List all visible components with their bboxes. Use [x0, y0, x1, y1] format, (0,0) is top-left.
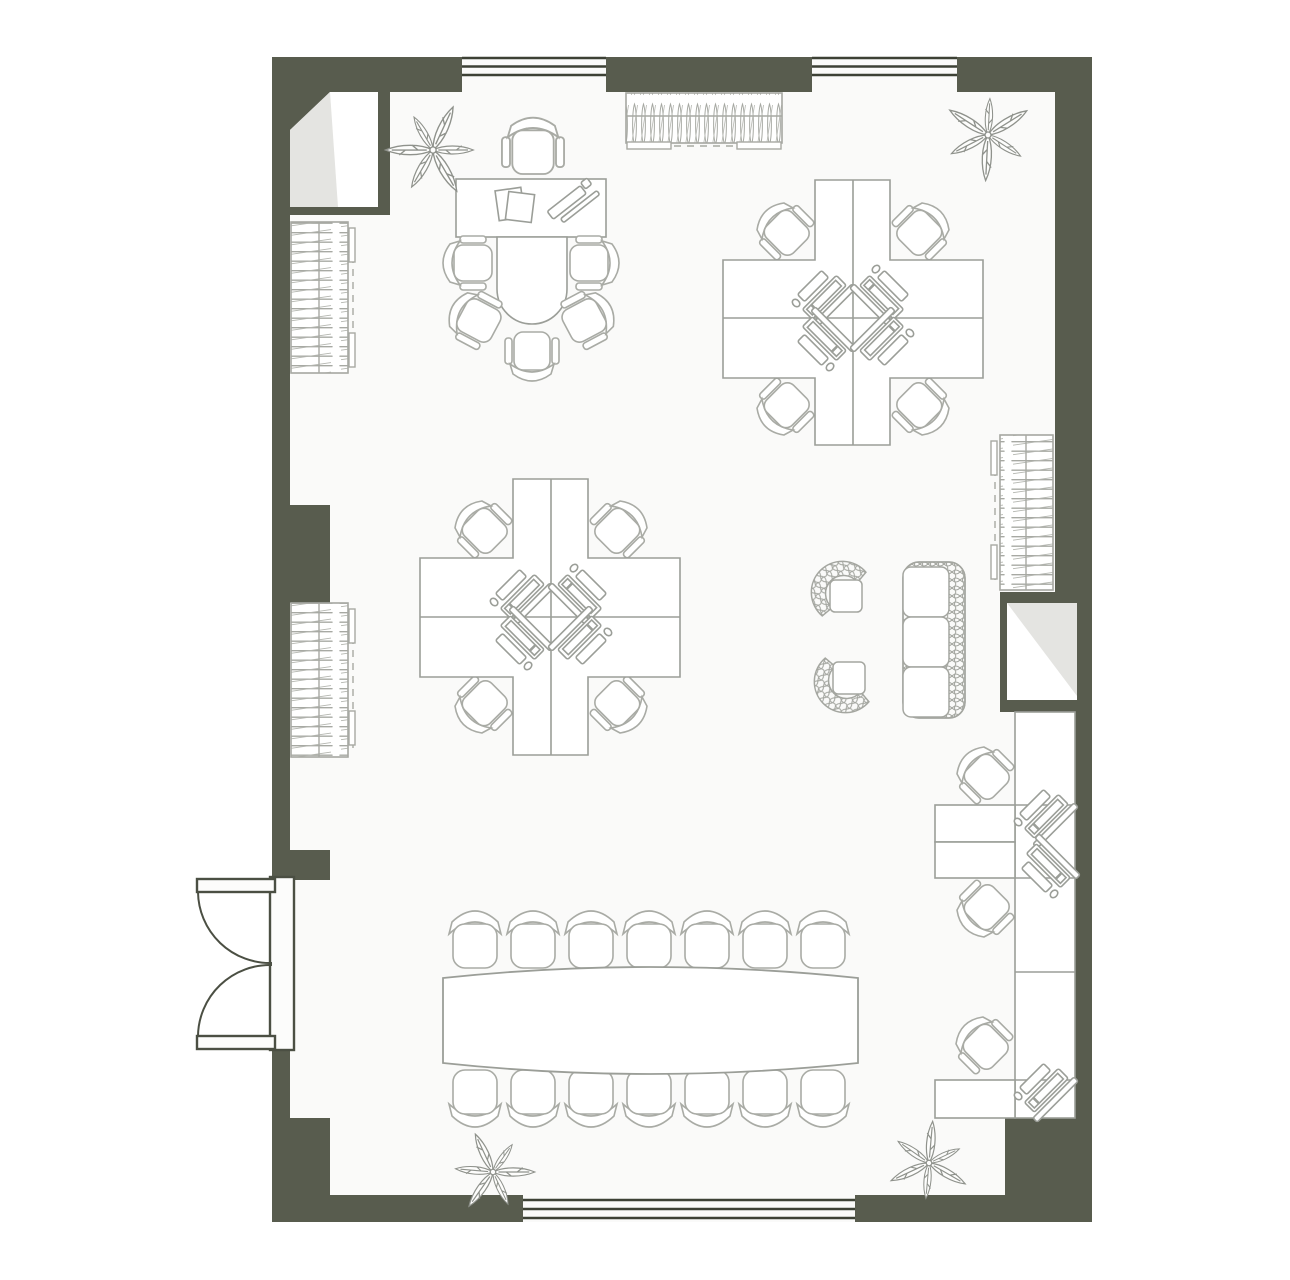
wall-left-upper	[272, 92, 290, 880]
wall-bottom-left	[272, 1195, 523, 1222]
coat-rack	[626, 93, 782, 149]
sofa-seat	[903, 567, 949, 617]
floor-plan-page: Office floor plan	[0, 0, 1290, 1280]
wall-top-middle	[606, 57, 812, 92]
wicker-sofa	[903, 562, 965, 718]
conference-table	[443, 967, 858, 1074]
sofa-seat	[903, 667, 949, 717]
wall-right-upper	[1055, 57, 1092, 592]
entry-double-door	[197, 877, 294, 1050]
meeting-extension-table	[497, 237, 567, 324]
wall-left-pier-2	[272, 850, 330, 880]
door-swing-arc-top	[198, 892, 272, 963]
door-leaf-bottom	[197, 1036, 275, 1049]
wall-right-lower	[1074, 712, 1092, 1118]
cluster-top-right	[723, 180, 983, 446]
wall-left-pier-1	[272, 505, 330, 603]
radiator-left-upper	[291, 222, 355, 373]
wall-desk-return	[935, 805, 1015, 842]
sofa-seat	[903, 617, 949, 667]
door-frame	[270, 877, 294, 1050]
radiator-right	[991, 435, 1053, 590]
floor-plan-canvas: Office floor plan	[0, 0, 1290, 1280]
cluster-mid-left	[420, 479, 680, 755]
wall-desk-run	[1015, 712, 1075, 1118]
shaft-right	[1007, 603, 1077, 700]
wall-desk-return	[935, 1080, 1015, 1118]
door-swing-arc-bottom	[198, 965, 272, 1036]
wall-desk-return	[935, 842, 1015, 878]
radiator-left-lower	[291, 603, 355, 757]
wall-corner-bottom-right	[1005, 1118, 1092, 1222]
door-leaf-top	[197, 879, 275, 892]
